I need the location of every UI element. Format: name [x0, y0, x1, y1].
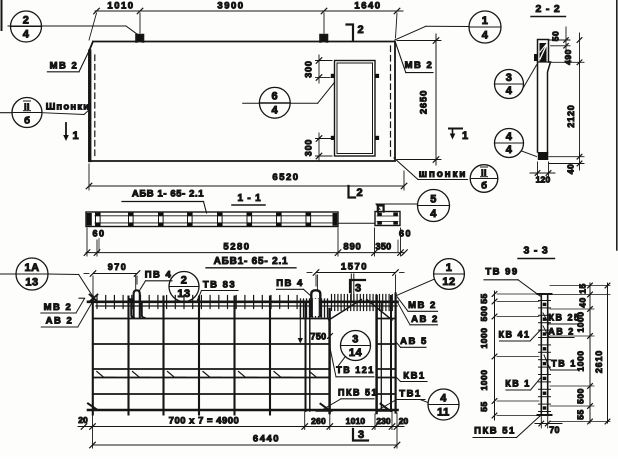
- svg-text:2 - 2: 2 - 2: [535, 3, 560, 15]
- svg-text:ПКВ 51: ПКВ 51: [474, 426, 516, 437]
- svg-text:300: 300: [304, 60, 314, 77]
- svg-text:11: 11: [437, 407, 450, 419]
- svg-text:4: 4: [506, 144, 513, 156]
- svg-text:6440: 6440: [253, 434, 280, 445]
- svg-text:55: 55: [479, 293, 489, 303]
- svg-text:14: 14: [349, 347, 363, 359]
- svg-text:II: II: [481, 168, 487, 178]
- svg-text:3: 3: [355, 283, 361, 295]
- svg-text:6: 6: [271, 91, 278, 103]
- svg-text:4: 4: [506, 131, 513, 143]
- svg-text:1А: 1А: [24, 262, 39, 274]
- svg-text:1: 1: [72, 130, 78, 142]
- svg-text:5280: 5280: [223, 242, 250, 253]
- svg-text:12: 12: [442, 276, 455, 288]
- svg-text:2: 2: [23, 14, 30, 26]
- svg-text:1: 1: [462, 130, 468, 142]
- svg-text:АВ 2: АВ 2: [548, 327, 575, 337]
- svg-text:4: 4: [23, 29, 30, 41]
- svg-text:55: 55: [479, 401, 489, 411]
- svg-text:3: 3: [352, 333, 359, 345]
- svg-text:ТВ1: ТВ1: [399, 389, 421, 400]
- svg-text:55: 55: [576, 409, 586, 419]
- svg-text:1: 1: [446, 262, 453, 274]
- svg-text:1640: 1640: [354, 1, 381, 12]
- svg-text:2610: 2610: [594, 350, 604, 373]
- svg-text:2: 2: [357, 24, 363, 36]
- svg-text:ТВ 83: ТВ 83: [203, 280, 236, 291]
- svg-text:5: 5: [430, 193, 437, 205]
- svg-text:120: 120: [536, 175, 551, 185]
- svg-text:1000: 1000: [479, 370, 489, 391]
- svg-text:13: 13: [177, 288, 190, 300]
- svg-text:ТВ 121: ТВ 121: [336, 365, 375, 375]
- svg-text:4: 4: [440, 392, 447, 404]
- svg-text:ПВ 4: ПВ 4: [145, 270, 173, 281]
- svg-text:60: 60: [399, 229, 412, 239]
- svg-text:1010: 1010: [346, 416, 366, 426]
- svg-text:2: 2: [356, 187, 362, 199]
- svg-text:4: 4: [271, 105, 278, 117]
- svg-text:ПКВ 51: ПКВ 51: [338, 388, 378, 398]
- svg-text:20: 20: [399, 416, 409, 426]
- svg-text:1570: 1570: [341, 262, 368, 273]
- svg-text:230: 230: [376, 416, 390, 426]
- svg-text:260: 260: [311, 416, 326, 426]
- svg-text:50: 50: [551, 31, 561, 41]
- svg-text:4: 4: [482, 30, 489, 42]
- svg-text:350: 350: [376, 242, 392, 252]
- svg-text:1000: 1000: [479, 328, 489, 349]
- svg-text:750: 750: [311, 332, 327, 342]
- svg-text:2650: 2650: [419, 90, 430, 114]
- svg-text:АБВ1- 65- 2.1: АБВ1- 65- 2.1: [214, 256, 289, 267]
- svg-text:II: II: [24, 102, 30, 112]
- svg-text:АВ 2: АВ 2: [411, 314, 439, 325]
- svg-text:КВ 1: КВ 1: [505, 379, 531, 389]
- svg-text:КВ 41: КВ 41: [498, 330, 530, 340]
- svg-text:АБВ 1- 65- 2.1: АБВ 1- 65- 2.1: [132, 189, 204, 200]
- svg-text:4: 4: [430, 208, 437, 220]
- svg-text:60: 60: [92, 229, 105, 239]
- svg-text:ТВ 1: ТВ 1: [551, 359, 577, 369]
- svg-text:970: 970: [108, 262, 128, 272]
- svg-text:3: 3: [358, 429, 364, 441]
- svg-text:МВ 2: МВ 2: [405, 60, 434, 71]
- svg-text:1: 1: [482, 15, 489, 27]
- svg-text:3 - 3: 3 - 3: [523, 245, 548, 257]
- svg-text:МВ 2: МВ 2: [44, 302, 73, 313]
- svg-text:40: 40: [578, 297, 588, 307]
- svg-text:6520: 6520: [272, 172, 299, 183]
- svg-text:2: 2: [181, 274, 188, 286]
- svg-text:АВ 5: АВ 5: [400, 336, 428, 347]
- svg-text:КВ 25: КВ 25: [548, 313, 580, 323]
- svg-text:500: 500: [576, 388, 586, 404]
- svg-text:3: 3: [506, 72, 513, 84]
- svg-text:2120: 2120: [566, 104, 576, 127]
- svg-text:300: 300: [304, 139, 314, 156]
- svg-text:40: 40: [566, 164, 576, 174]
- svg-text:ПВ 4: ПВ 4: [276, 278, 304, 289]
- svg-text:Шпонки: Шпонки: [46, 102, 91, 113]
- svg-text:700 x 7 = 4900: 700 x 7 = 4900: [169, 416, 240, 427]
- svg-text:МВ 2: МВ 2: [50, 61, 79, 72]
- svg-text:АВ 2: АВ 2: [46, 316, 74, 327]
- svg-text:15: 15: [578, 283, 588, 293]
- svg-text:70: 70: [549, 425, 560, 435]
- svg-text:КВ1: КВ1: [403, 371, 425, 382]
- svg-text:4: 4: [506, 85, 513, 97]
- svg-text:890: 890: [343, 242, 361, 253]
- svg-text:шпонки: шпонки: [419, 169, 467, 180]
- svg-text:б: б: [481, 180, 487, 191]
- svg-text:1010: 1010: [107, 1, 134, 12]
- svg-text:500: 500: [479, 306, 489, 322]
- svg-text:МВ 2: МВ 2: [408, 300, 437, 311]
- svg-text:20: 20: [78, 415, 88, 425]
- svg-text:1 - 1: 1 - 1: [237, 193, 261, 204]
- svg-text:б: б: [24, 116, 30, 127]
- svg-text:13: 13: [25, 277, 38, 289]
- svg-text:3900: 3900: [217, 1, 244, 12]
- svg-text:1000: 1000: [576, 351, 586, 372]
- svg-text:490: 490: [563, 49, 573, 65]
- svg-text:ТВ 99: ТВ 99: [485, 267, 518, 278]
